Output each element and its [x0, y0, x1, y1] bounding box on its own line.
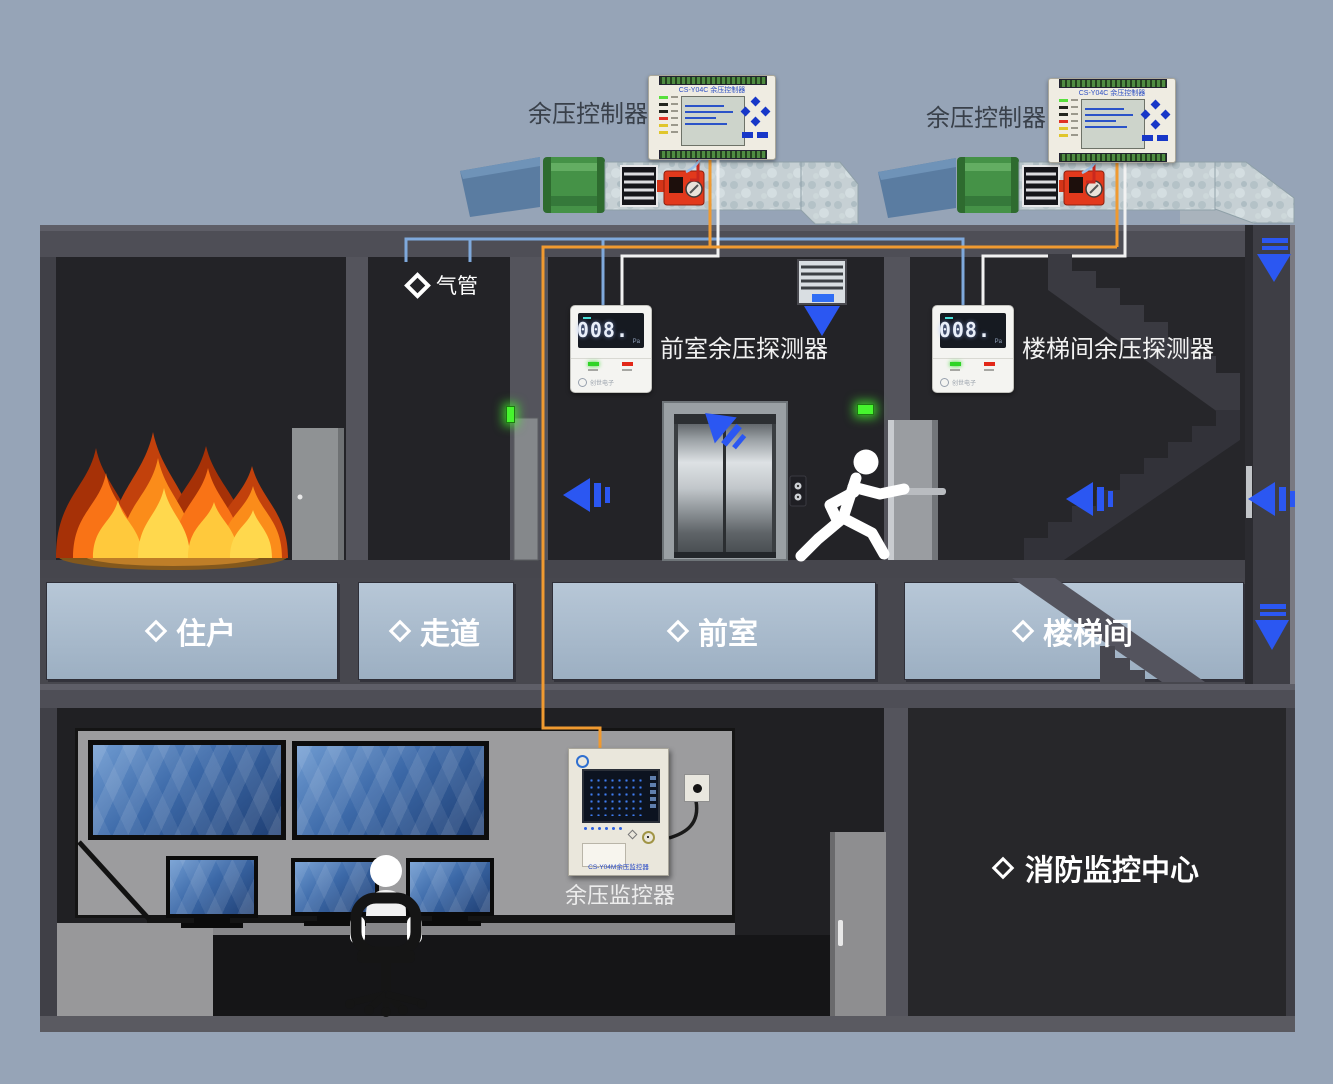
panel-corridor [358, 582, 514, 680]
led-green [659, 96, 668, 99]
room-front [548, 257, 884, 560]
keyhole-icon [642, 831, 655, 844]
wall-monitor-1 [88, 740, 286, 840]
led-off [659, 110, 668, 113]
diamond-icon [404, 272, 431, 299]
fire-center-label: 消防监控中心 [995, 847, 1199, 889]
stair-detector-label: 楼梯间余压探测器 [1022, 329, 1214, 364]
desk-monitor-2 [291, 858, 379, 916]
controller-left-label: 余压控制器 [528, 94, 648, 129]
room-corridor [368, 257, 510, 560]
detector-display: 008. Pa [578, 313, 644, 348]
led-red [659, 117, 668, 120]
air-pipe-label: 气管 [408, 270, 478, 300]
key-down [751, 117, 761, 127]
key-btn [742, 132, 753, 138]
detector-led-green [588, 362, 599, 366]
right-wall-floor0 [1286, 708, 1295, 1016]
monitor-model-text: CS-Y04M余压监控器 [569, 861, 668, 871]
left-wall-floor1 [40, 257, 56, 560]
key-btn [757, 132, 768, 138]
wall-monitor-2 [292, 741, 489, 840]
monitor-label: 余压监控器 [555, 878, 685, 910]
brand-logo-icon [576, 755, 589, 768]
monitor-screen [582, 769, 660, 823]
key-down [1151, 120, 1161, 130]
key-up [751, 97, 761, 107]
pressure-monitor-cabinet: CS-Y04M余压监控器 [568, 748, 669, 876]
controller-model-text: CS-Y04C 余压控制器 [1049, 88, 1175, 98]
building-pressure-system-diagram: CS-Y04C 余压控制器 CS-Y04C 余压控制器 [0, 0, 1333, 1084]
floor1-ceiling-slab [40, 225, 1245, 257]
controller-lcd [1081, 99, 1145, 149]
led-off [1059, 113, 1068, 116]
detector-brand: 创世电子 [940, 378, 976, 387]
front-detector-label: 前室余压探测器 [660, 329, 828, 364]
duct-grille [621, 166, 657, 206]
key-btn [1157, 135, 1168, 141]
wall-frontroom-stairwell [884, 257, 910, 560]
led-red [1059, 120, 1068, 123]
desk-monitor-3 [406, 858, 494, 916]
detector-unit: Pa [633, 339, 640, 345]
detector-led-green [950, 362, 961, 366]
led-yellow [1059, 127, 1068, 130]
panel-stairwell [904, 582, 1244, 680]
controller-right-label: 余压控制器 [926, 98, 1046, 133]
detector-display: 008. Pa [940, 313, 1006, 348]
led-off [1059, 106, 1068, 109]
wall-resident-corridor [346, 257, 368, 560]
monitor-base [419, 921, 481, 926]
left-wall-floor0 [40, 708, 57, 1016]
monitor-base [181, 923, 243, 928]
supply-duct-right [878, 157, 1294, 224]
led-green [1059, 99, 1068, 102]
detector-brand: 创世电子 [578, 378, 614, 387]
console-floor [57, 923, 213, 1016]
pressure-controller-right: CS-Y04C 余压控制器 [1048, 78, 1176, 163]
detector-led-red [984, 362, 995, 366]
shaft-outer-edge [1290, 225, 1295, 684]
damper-actuator [1059, 171, 1104, 205]
key-right [761, 107, 771, 117]
desk-monitor-1 [166, 856, 258, 918]
exit-light-corridor [506, 406, 515, 423]
supply-duct-left [460, 157, 858, 224]
damper-actuator [657, 171, 704, 205]
key-right [1161, 110, 1171, 120]
diamond-mark-icon [628, 830, 638, 840]
key-btn [1142, 135, 1153, 141]
wall-corridor-frontroom [510, 257, 548, 560]
power-outlet [684, 774, 710, 802]
floor0-ceiling-slab [40, 684, 1295, 708]
floor1-slab [40, 560, 1245, 578]
controller-lcd [681, 96, 745, 146]
wall-controlroom-center [884, 708, 908, 1016]
monitor-base [304, 921, 366, 926]
detector-led-red [622, 362, 633, 366]
pressure-detector-front: 008. Pa 创世电子 [570, 305, 652, 393]
room-stairwell [910, 257, 1245, 560]
ground-slab [40, 1016, 1295, 1032]
led-off [659, 103, 668, 106]
detector-value: 008. [577, 318, 629, 342]
desk-front [213, 935, 884, 1016]
panel-resident [46, 582, 338, 680]
room-resident [56, 257, 346, 560]
pressure-relief-shaft [1253, 225, 1290, 684]
detector-value: 008. [939, 318, 991, 342]
led-yellow [659, 131, 668, 134]
diamond-icon [992, 857, 1015, 880]
detector-unit: Pa [995, 339, 1002, 345]
led-yellow [659, 124, 668, 127]
panel-front-room [552, 582, 876, 680]
controller-model-text: CS-Y04C 余压控制器 [649, 85, 775, 95]
key-up [1151, 100, 1161, 110]
duct-grille [1023, 166, 1059, 206]
pressure-controller-left: CS-Y04C 余压控制器 [648, 75, 776, 160]
shaft-wall [1245, 225, 1253, 684]
led-yellow [1059, 134, 1068, 137]
exit-light-frontroom [857, 404, 874, 415]
pressure-detector-stairwell: 008. Pa 创世电子 [932, 305, 1014, 393]
